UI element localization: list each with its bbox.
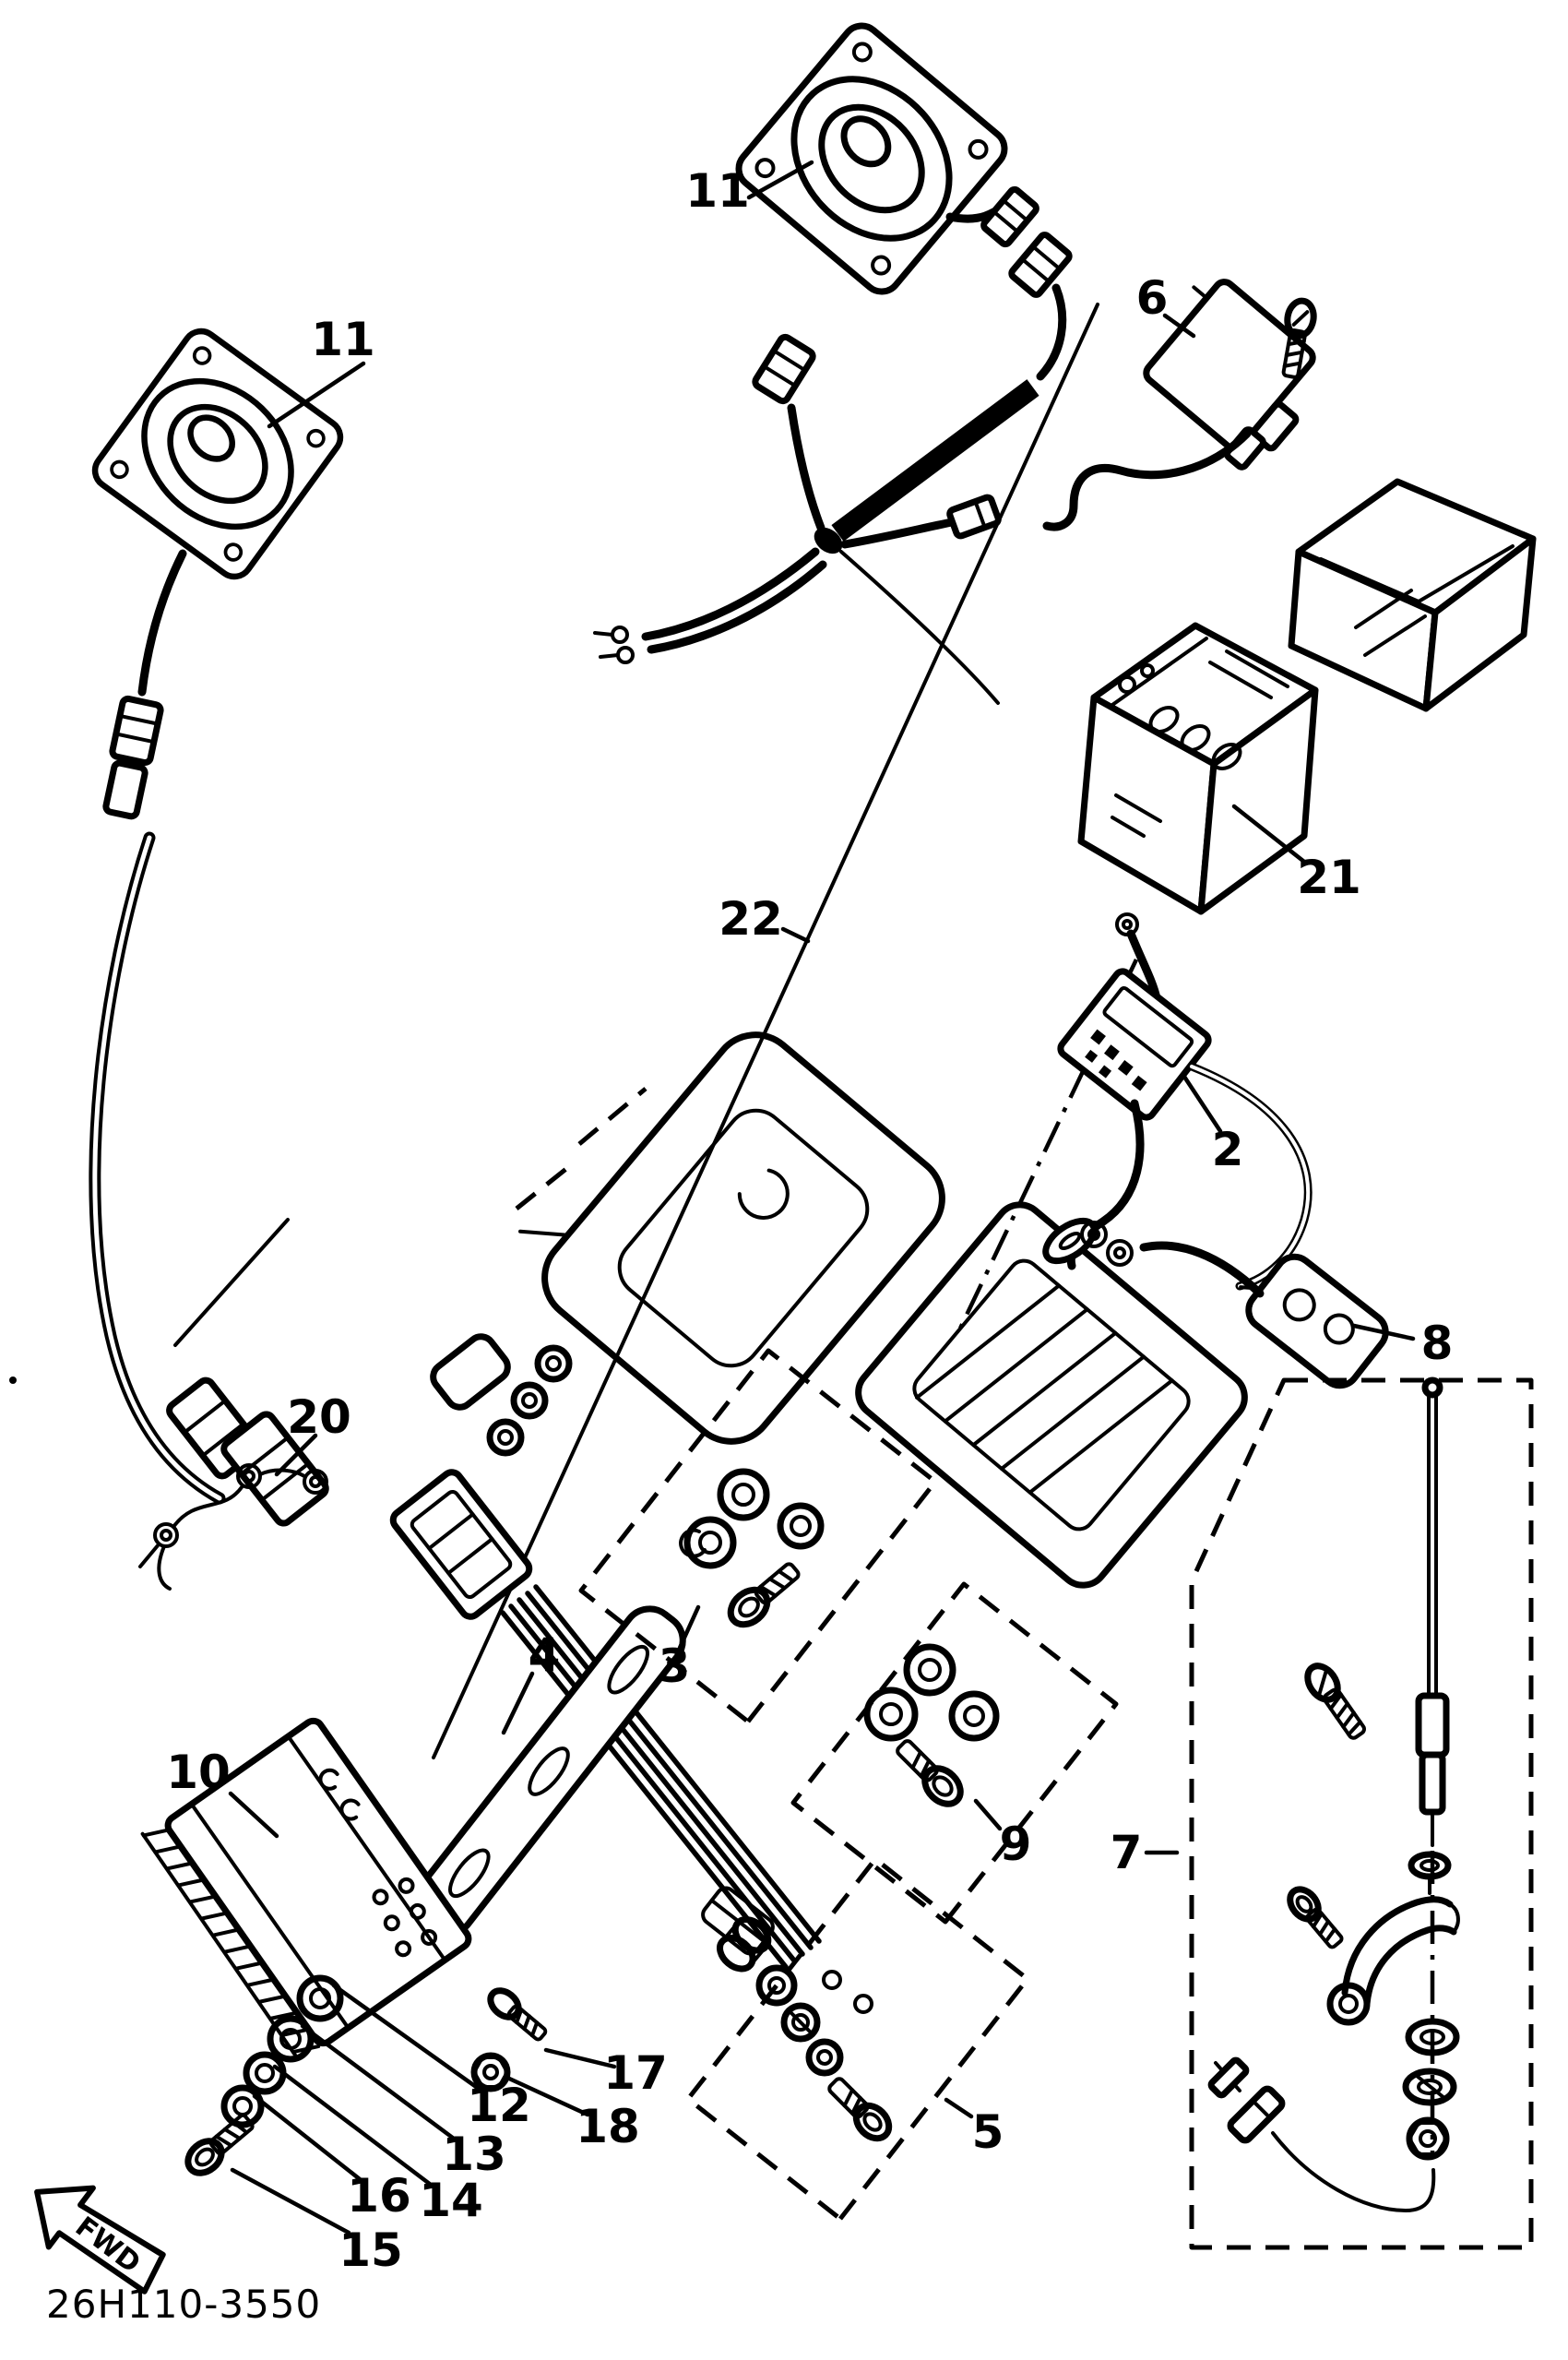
callout-leader-22 (783, 929, 808, 941)
callout-6: 6 (1136, 271, 1169, 325)
callout-15: 15 (339, 2223, 403, 2277)
callout-leader-9 (976, 1801, 1000, 1829)
washer-13 (270, 2019, 311, 2059)
antenna-kit (1192, 1380, 1531, 2247)
callout-leader-14 (275, 2067, 431, 2185)
callout-21: 21 (1297, 851, 1361, 904)
callout-leader-16 (255, 2096, 360, 2179)
callout-7: 7 (1111, 1826, 1143, 1879)
callout-4: 4 (529, 1628, 561, 1682)
scan-speck (9, 1377, 17, 1384)
antenna-bracket-arm (1330, 1900, 1458, 2022)
callout-16: 16 (347, 2169, 411, 2223)
callout-3: 3 (659, 1639, 691, 1693)
callout-11: 11 (311, 313, 375, 366)
washer-14 (246, 2055, 283, 2092)
callout-20: 20 (287, 1390, 351, 1444)
callout-11: 11 (685, 164, 750, 218)
callout-12: 12 (467, 2079, 531, 2132)
screw-17 (485, 1985, 550, 2044)
washer-16 (224, 2088, 261, 2125)
callout-leader-15 (232, 2170, 349, 2233)
callout-22: 22 (719, 892, 783, 946)
antenna-mast (1419, 1696, 1446, 1755)
antenna-cable (1209, 2058, 1433, 2211)
exploded-parts-diagram: FWD 26H110-3550 111162122282010439751213… (0, 0, 1568, 2360)
callout-leader-12 (334, 1985, 479, 2089)
fuse-box (1039, 969, 1211, 1269)
parts-diagram-page: FWD 26H110-3550 111162122282010439751213… (0, 0, 1568, 2360)
callout-leader-13 (303, 2026, 454, 2139)
speaker-left (89, 325, 348, 584)
callout-18: 18 (576, 2100, 640, 2153)
callout-10: 10 (166, 1746, 231, 1799)
frame-bracket (498, 993, 960, 1459)
stay-and-washers (428, 1331, 569, 1453)
battery (1081, 626, 1315, 998)
callout-9: 9 (1000, 1818, 1032, 1871)
callout-14: 14 (419, 2174, 483, 2227)
fastener-group-5 (688, 1859, 1028, 2219)
callout-leader-5 (946, 2100, 971, 2116)
fastener-group-9 (793, 1584, 1116, 1922)
callout-5: 5 (972, 2105, 1004, 2159)
speaker-top (731, 18, 1012, 299)
speaker-top-wiring (595, 187, 1071, 703)
bolt-15 (182, 2110, 257, 2180)
callout-leader-4 (504, 1674, 532, 1733)
bracket-bolt (1284, 1884, 1346, 1951)
speaker-left-wiring (95, 554, 329, 1526)
callout-17: 17 (603, 2046, 668, 2100)
flasher-relay (1047, 268, 1316, 527)
hidden-line (517, 1164, 572, 1209)
callout-8: 8 (1421, 1317, 1454, 1370)
hidden-line (579, 1089, 646, 1144)
artwork: FWD 26H110-3550 (9, 18, 1533, 2327)
part-code: 26H110-3550 (46, 2282, 321, 2327)
antenna-tip (1425, 1380, 1440, 1395)
antenna-screw (1301, 1661, 1370, 1743)
callout-2: 2 (1212, 1123, 1244, 1176)
battery-cover (1291, 482, 1533, 709)
frame-edge-line (175, 1220, 288, 1345)
